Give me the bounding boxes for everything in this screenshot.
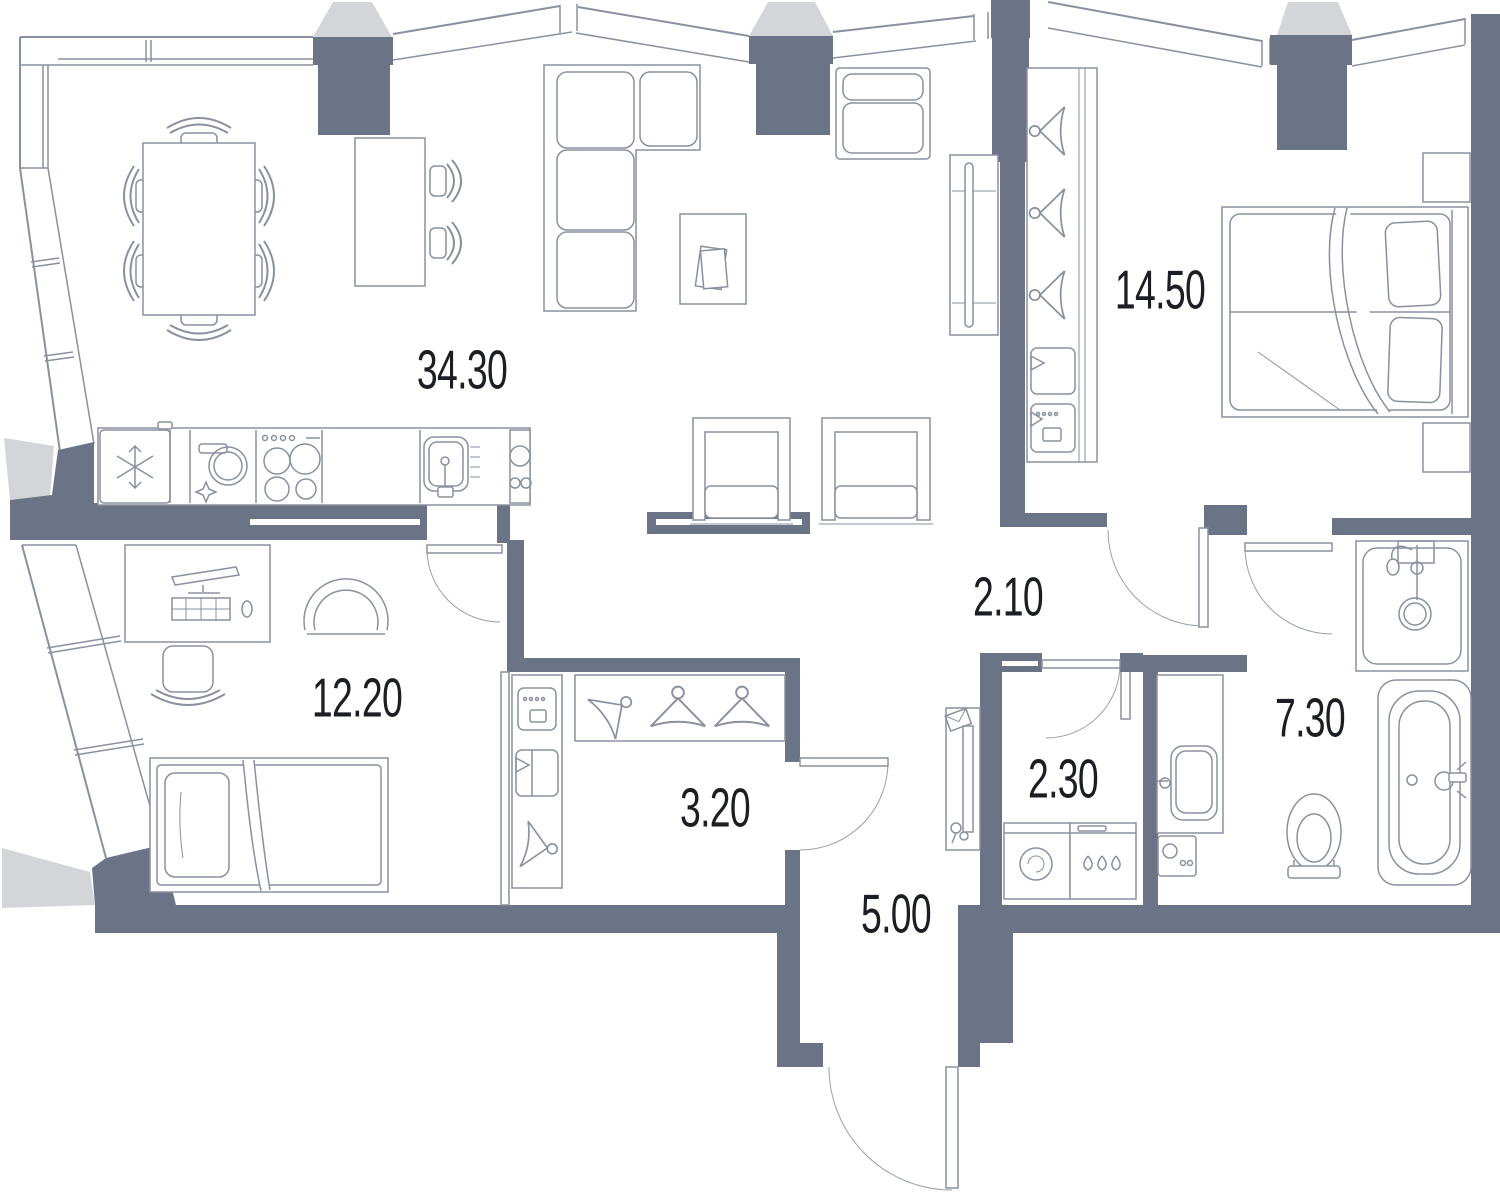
desk-chair [151, 646, 225, 705]
single-bed [150, 758, 388, 892]
toilet-icon [1287, 794, 1341, 878]
closet-door [800, 758, 888, 850]
double-bed [1222, 207, 1468, 417]
nightstand [1423, 423, 1470, 472]
room-area-label-laundry: 2.30 [1028, 752, 1098, 807]
kitchen-counter [98, 422, 531, 505]
armchair [836, 68, 930, 159]
fridge-icon [100, 422, 172, 503]
vanity-sink-icon [1157, 675, 1223, 876]
shower-icon [1356, 541, 1468, 671]
desk-workstation [125, 545, 270, 642]
floor-plan-drawing [0, 0, 1500, 1193]
console-table-chairs [355, 138, 461, 286]
lounge-chair-1 [690, 418, 793, 524]
drawer-icon [518, 688, 556, 730]
bathroom-door [1245, 543, 1332, 634]
laundry-door [1042, 660, 1120, 738]
room-area-label-closet: 3.20 [680, 781, 750, 836]
master-wardrobe [1027, 68, 1097, 462]
nightstand [1423, 153, 1470, 202]
hallway-console [945, 708, 980, 850]
tub-chair [304, 579, 388, 634]
room-area-label-bathroom: 7.30 [1275, 691, 1345, 746]
hob-end-unit-icon [510, 430, 531, 503]
dryer-icon [1070, 823, 1136, 899]
room-area-label-living: 34.30 [417, 343, 507, 398]
washing-machine-icon [1004, 823, 1070, 899]
bathtub-icon [1378, 680, 1471, 885]
corner-sofa [544, 65, 700, 311]
master-bedroom-door [1108, 528, 1208, 627]
tv-stand [950, 155, 998, 335]
drawer-icon [1031, 404, 1075, 452]
folded-clothes-icon [1031, 348, 1075, 394]
lounge-chair-2 [819, 418, 933, 524]
entrance-door [829, 1067, 958, 1190]
dining-table-set [124, 118, 274, 340]
room-area-label-corridor: 2.10 [973, 570, 1043, 625]
coffee-table [680, 214, 746, 304]
room-area-label-bedroom2: 12.20 [312, 671, 402, 726]
floor-plan: 34.30 14.50 2.10 12.20 3.20 5.00 2.30 7.… [0, 0, 1500, 1193]
second-bedroom-door [427, 545, 502, 622]
room-area-label-bedroom: 14.50 [1115, 263, 1205, 318]
folded-clothes-icon [516, 750, 558, 796]
room-area-label-hall: 5.00 [861, 887, 931, 942]
